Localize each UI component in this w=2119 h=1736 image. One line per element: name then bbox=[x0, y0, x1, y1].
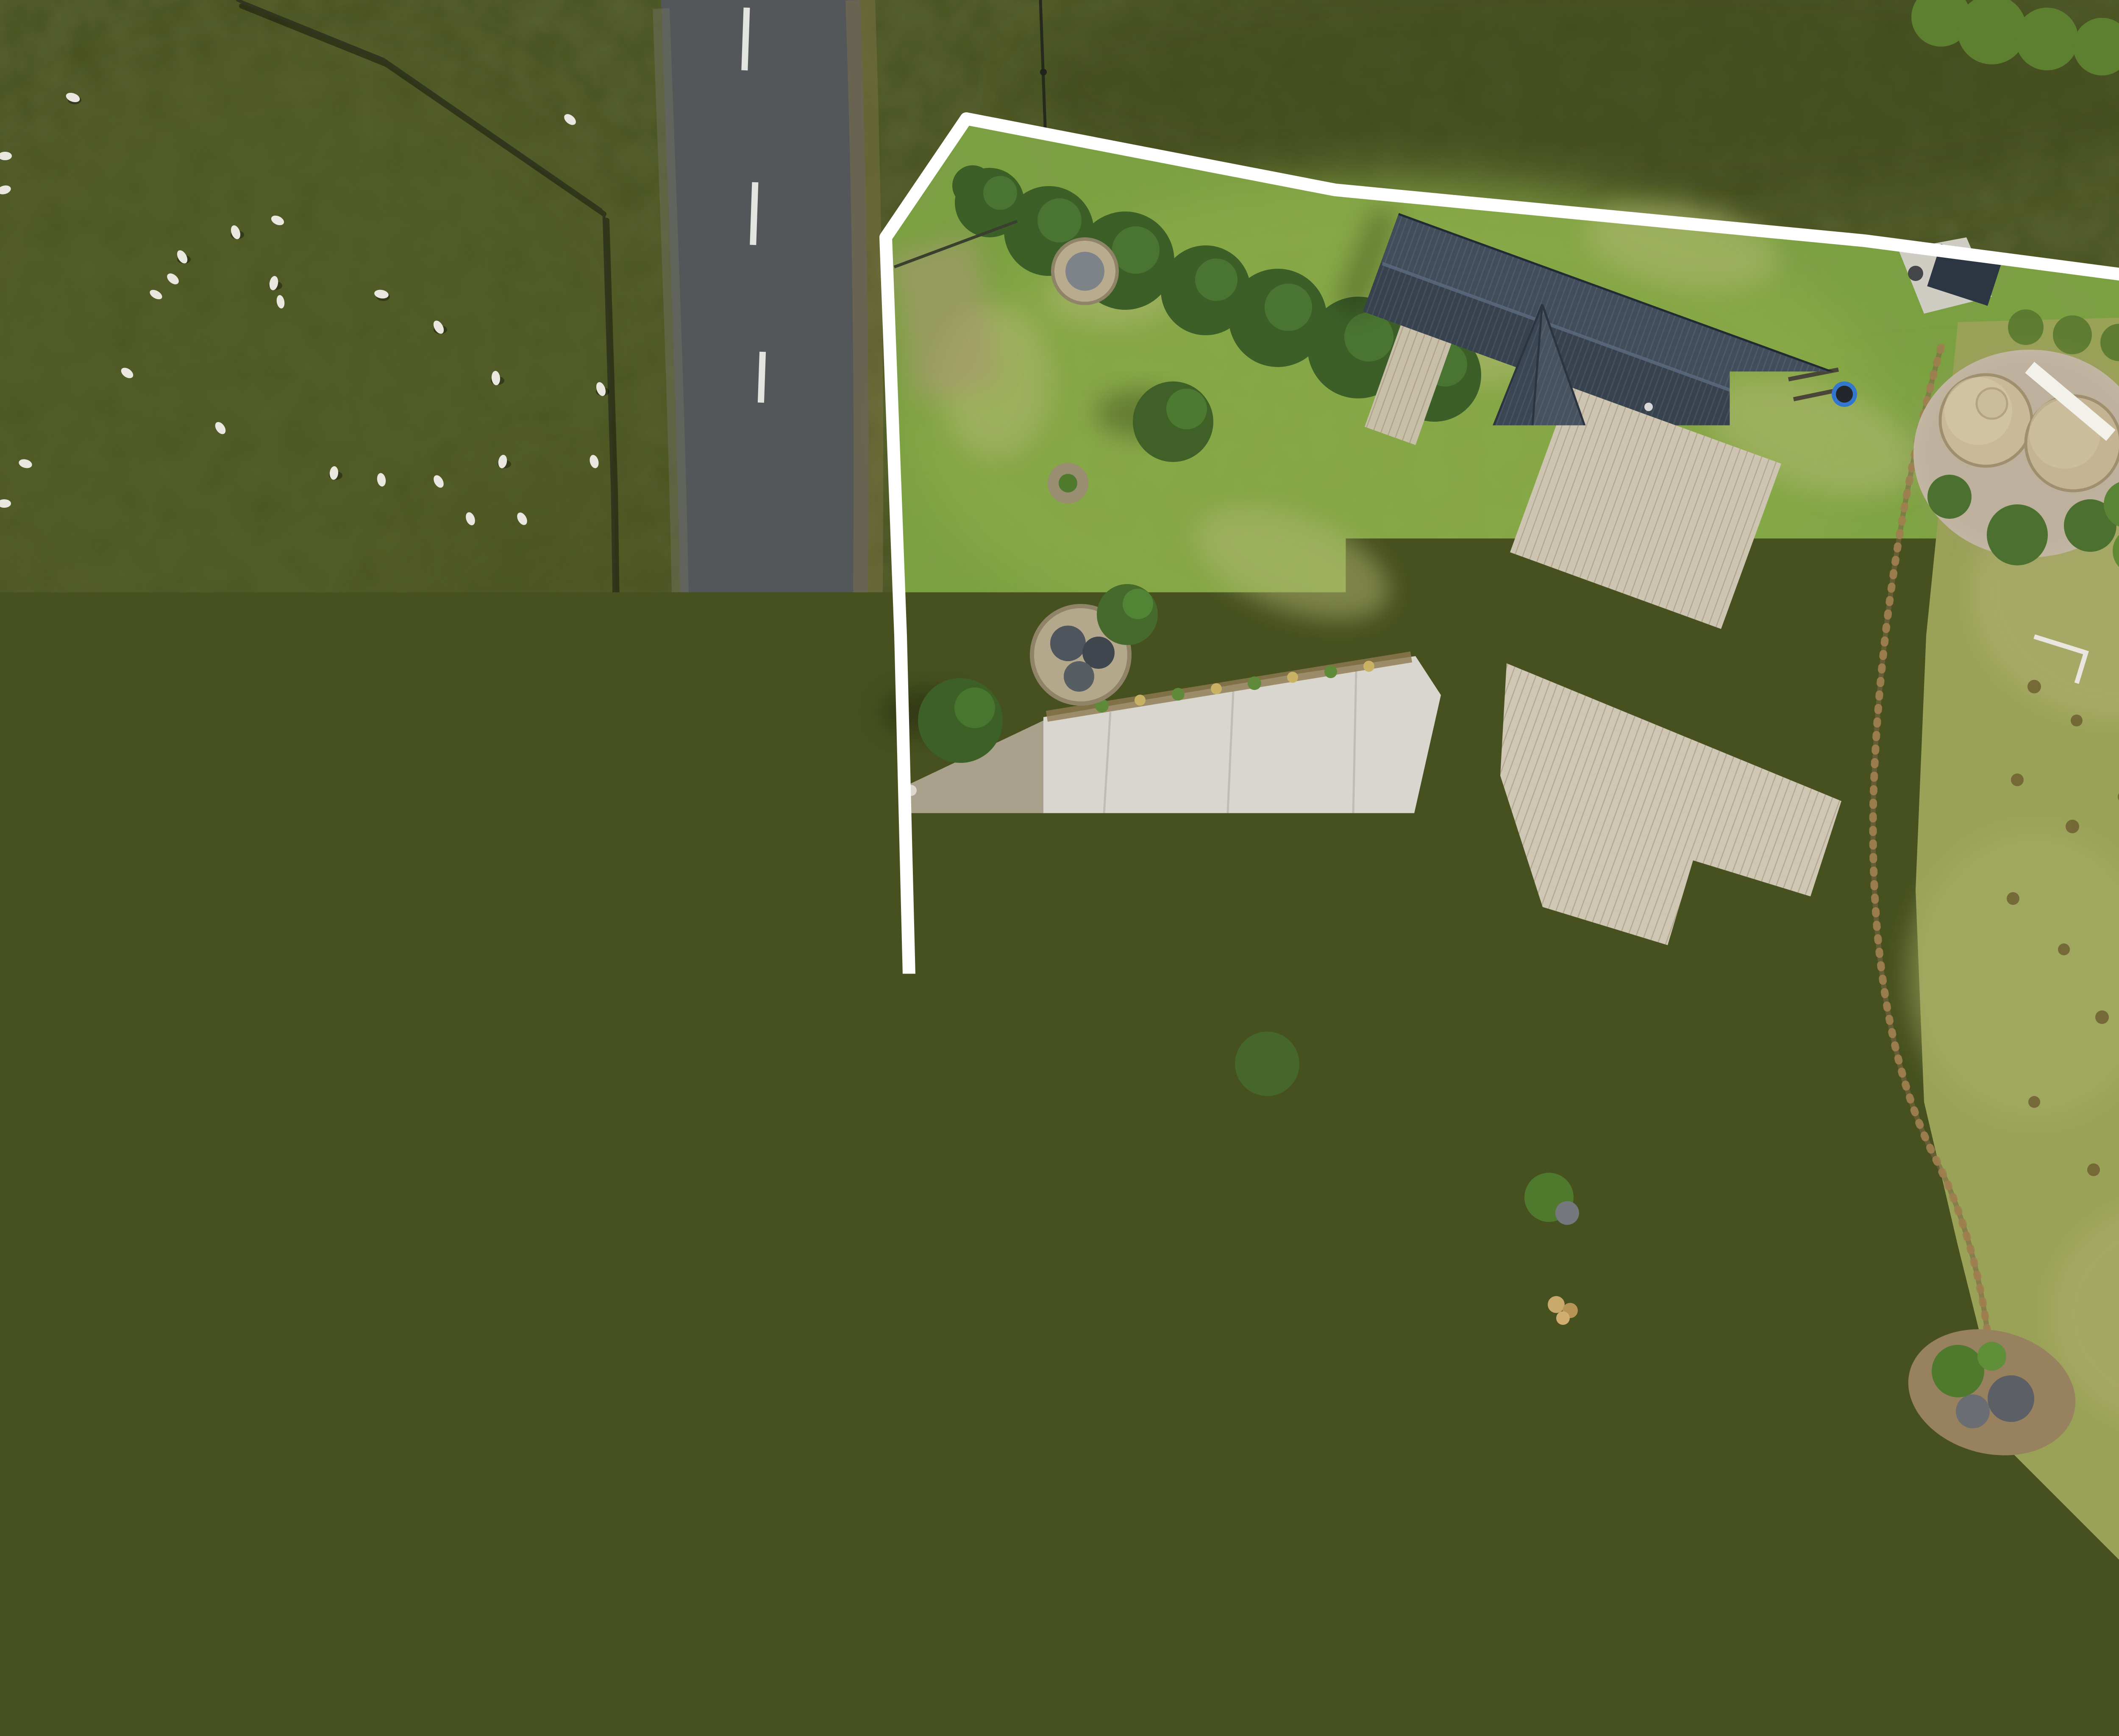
aerial-scene bbox=[0, 0, 2119, 1736]
aerial-photo: Boundary lines are indicative only bbox=[0, 0, 2119, 1736]
blue-bin bbox=[1568, 1512, 1591, 1538]
mailbox bbox=[873, 1371, 893, 1395]
boundary-disclaimer: Boundary lines are indicative only bbox=[146, 1641, 862, 1685]
farm-track bbox=[0, 1182, 742, 1189]
solar-array bbox=[1396, 1021, 1532, 1108]
property bbox=[882, 119, 2119, 1635]
